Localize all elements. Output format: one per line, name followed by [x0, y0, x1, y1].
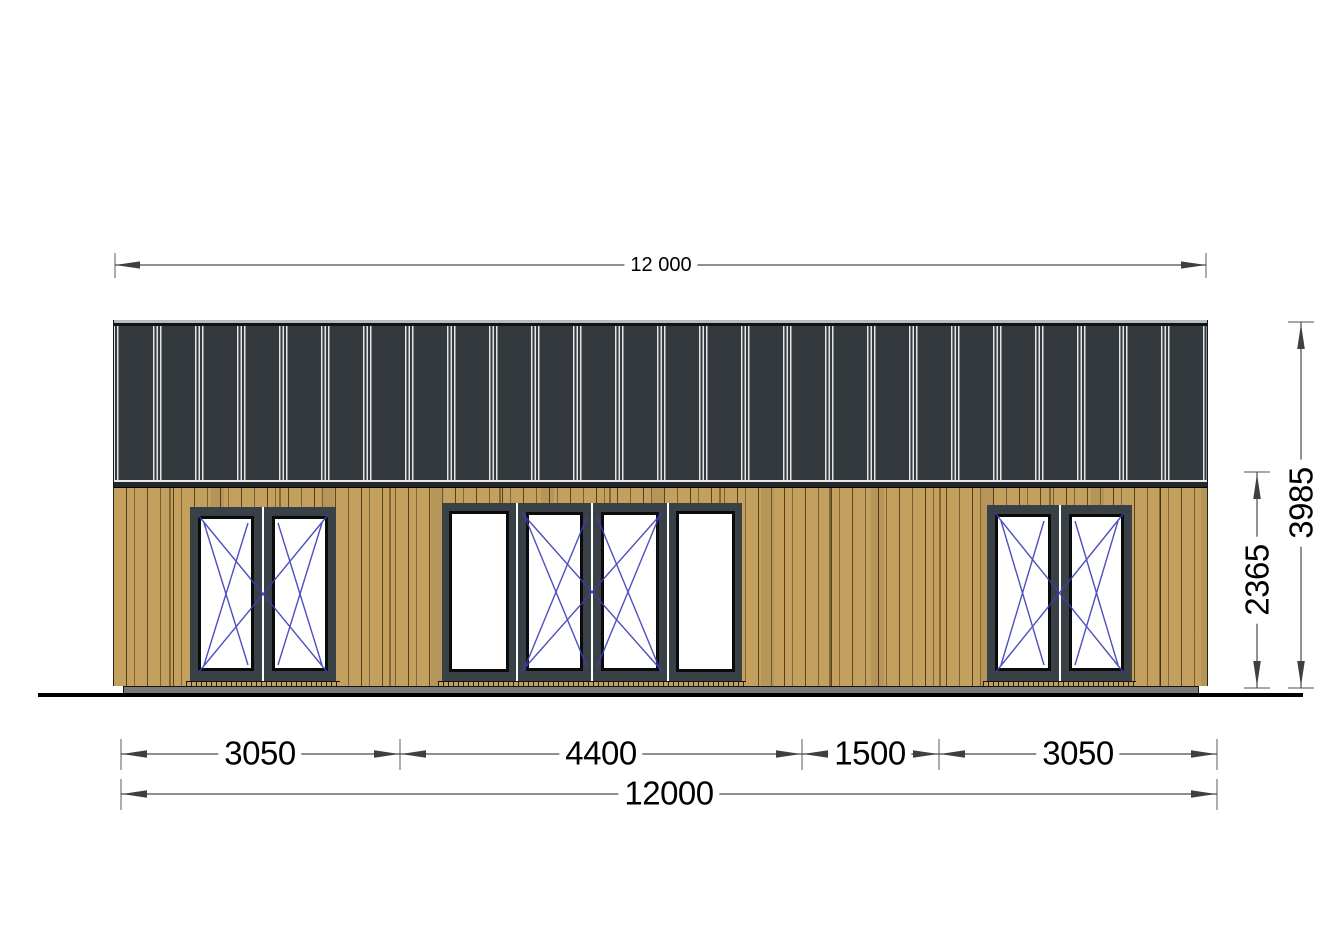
- window-sash: [1061, 505, 1133, 681]
- window-sash: [190, 507, 262, 681]
- window-glass: [995, 514, 1051, 671]
- door-unit-center: [442, 503, 742, 681]
- dim-segment-2: 4400: [559, 737, 642, 770]
- window-glass: [449, 511, 509, 672]
- dim-segment-4: 3050: [1036, 737, 1119, 770]
- door-sash: [518, 503, 592, 681]
- dim-total-height: 3985: [1285, 459, 1318, 546]
- ground-line: [38, 693, 1303, 697]
- window-glass: [198, 516, 254, 671]
- window-sash: [987, 505, 1059, 681]
- window-unit-right: [987, 505, 1132, 681]
- elevation-drawing: 12 000 3050 4400 1500 3050 12000 2365 39…: [0, 0, 1343, 938]
- roof: [113, 320, 1208, 488]
- dim-top-width: 12 000: [624, 255, 697, 275]
- window-glass: [272, 516, 328, 671]
- door-glass: [526, 512, 584, 671]
- dim-wall-height: 2365: [1241, 536, 1274, 623]
- roof-standing-seam-panels: [114, 326, 1207, 480]
- dim-segment-3: 1500: [828, 737, 911, 770]
- fixed-glazing-panel: [669, 503, 743, 681]
- fixed-glazing-panel: [442, 503, 516, 681]
- dim-total-width: 12000: [618, 777, 719, 810]
- door-sash: [593, 503, 667, 681]
- door-glass: [601, 512, 659, 671]
- window-unit-left: [190, 507, 336, 681]
- dim-segment-1: 3050: [218, 737, 301, 770]
- window-sash: [264, 507, 336, 681]
- window-glass: [1069, 514, 1125, 671]
- window-glass: [676, 511, 736, 672]
